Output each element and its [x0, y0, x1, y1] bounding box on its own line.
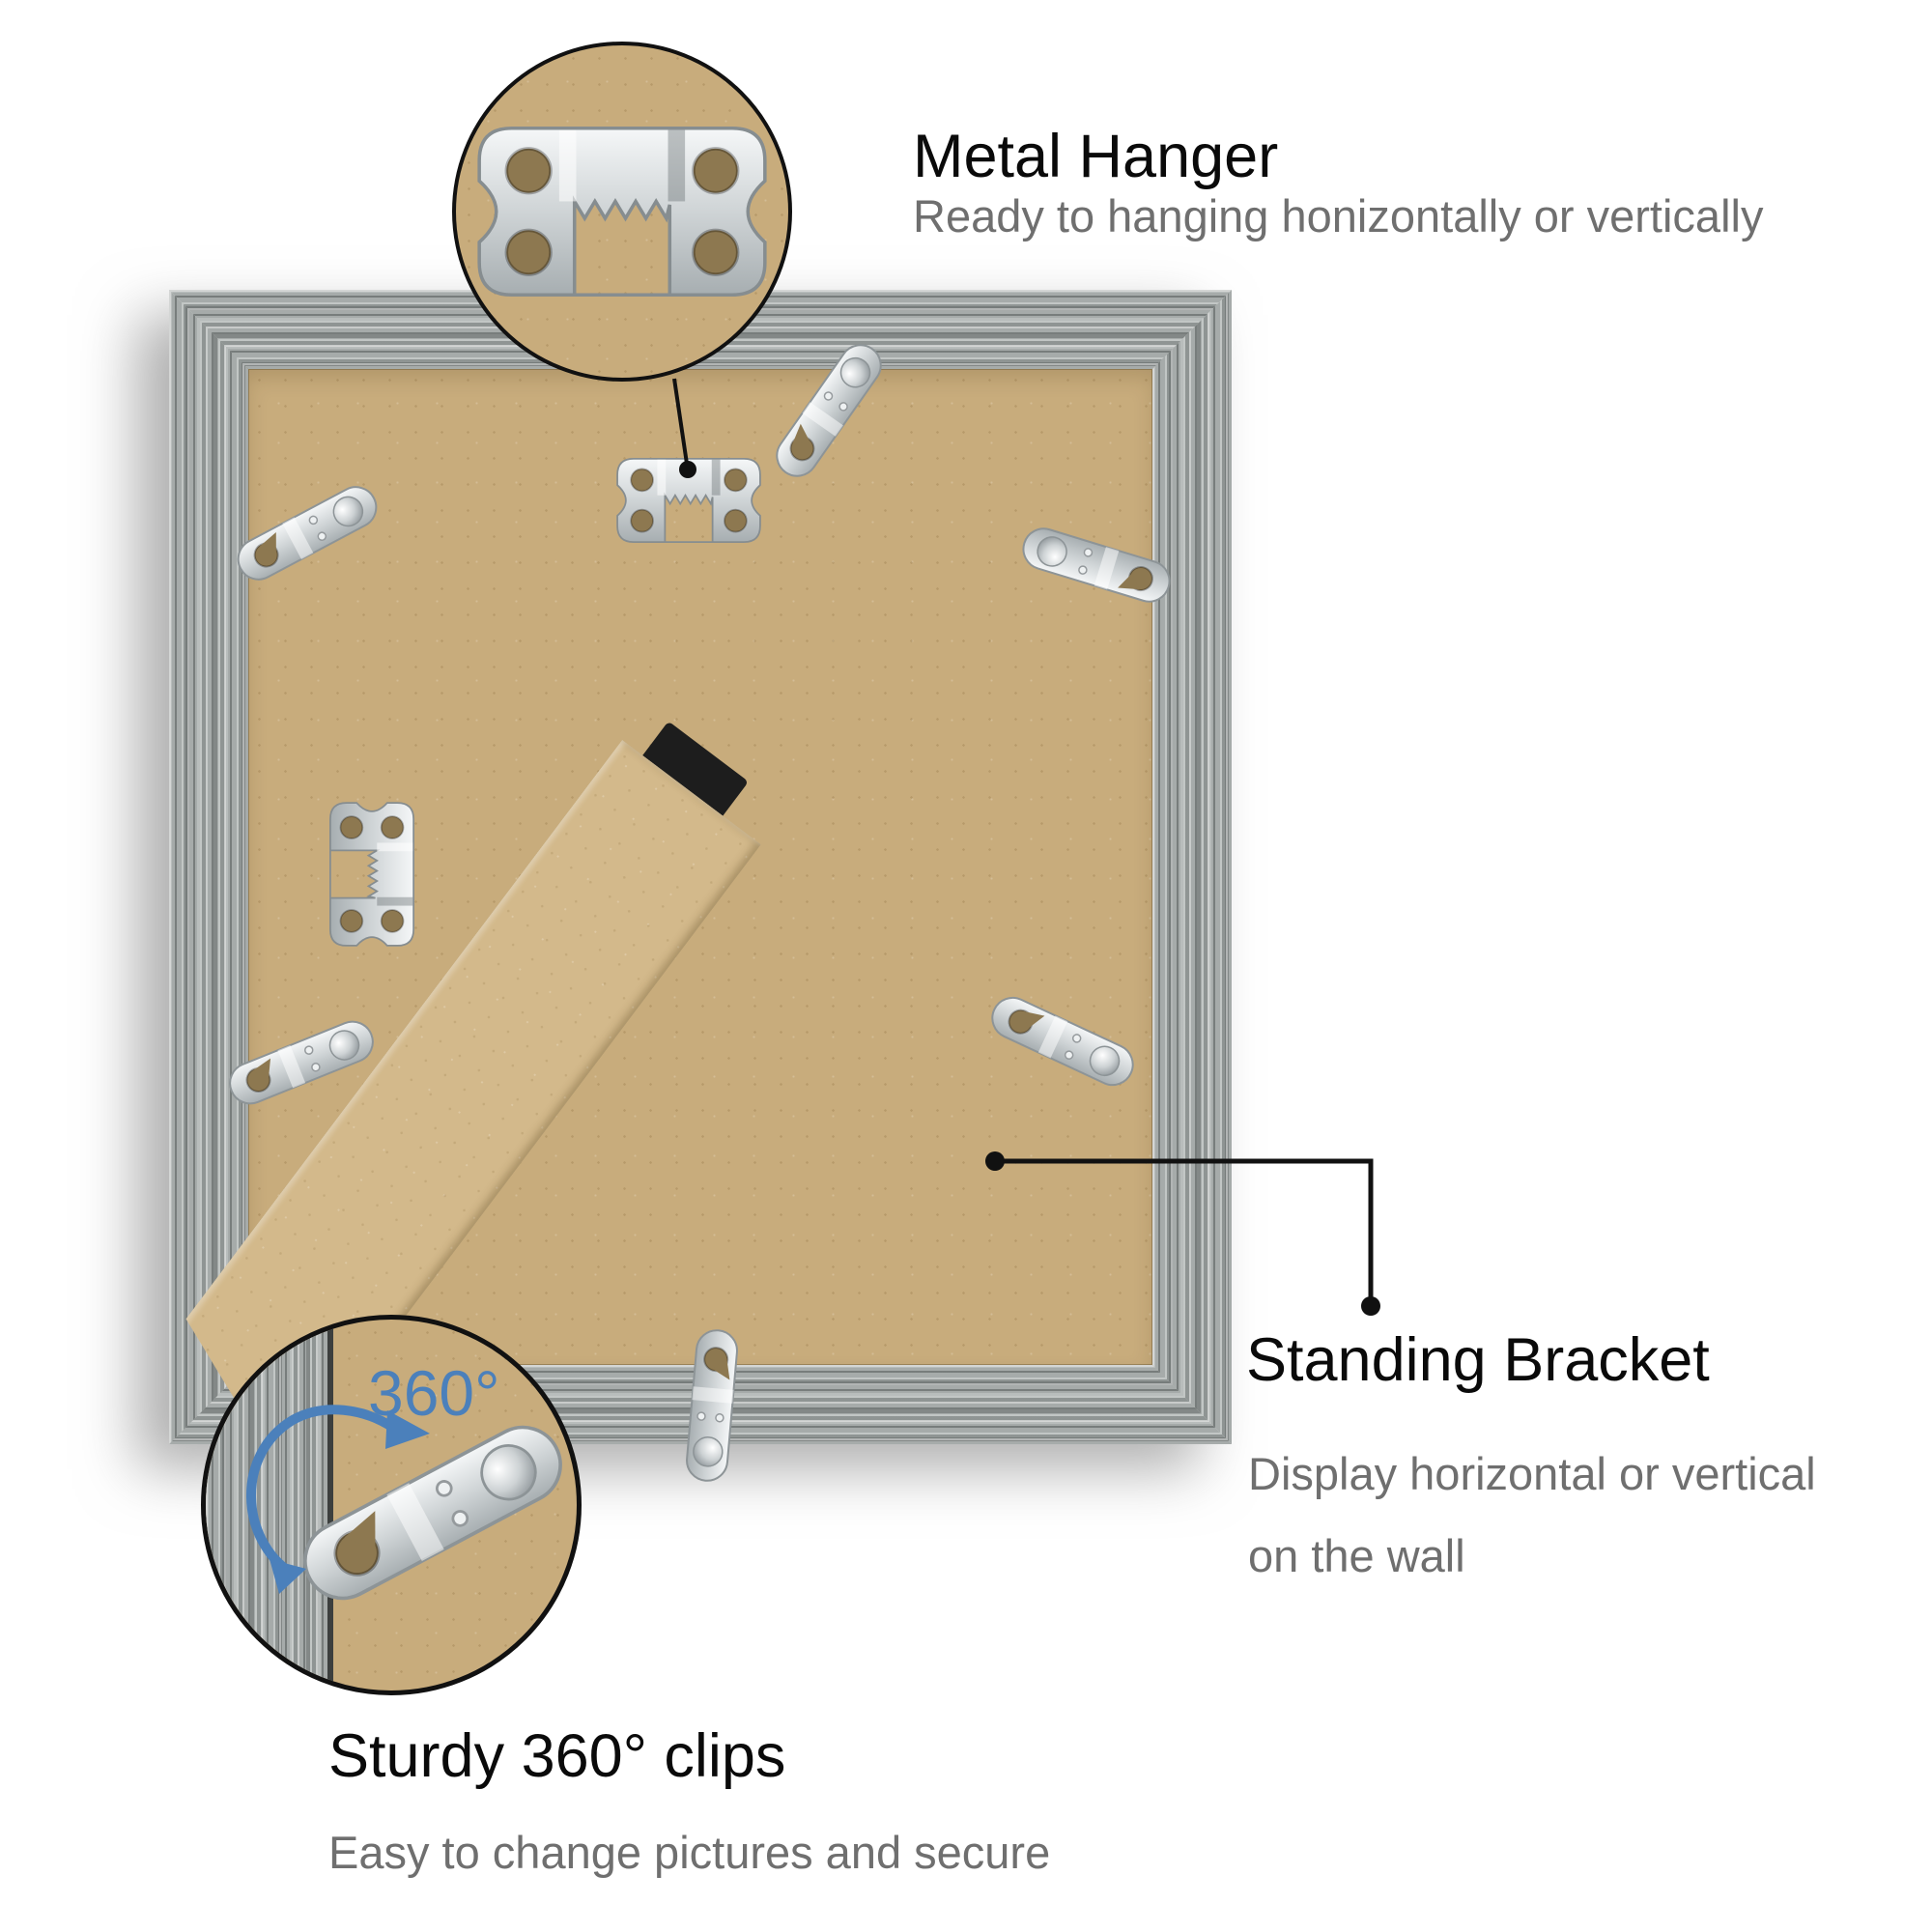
leader-dot-bracket-end: [1361, 1296, 1380, 1316]
standing-bracket-subtitle-line2: on the wall: [1248, 1529, 1465, 1582]
standing-bracket-subtitle-line1: Display horizontal or vertical: [1248, 1447, 1816, 1500]
metal-hanger-zoom-circle: [452, 42, 792, 382]
metal-hanger-subtitle: Ready to hanging honizontally or vertica…: [913, 189, 1763, 242]
leader-dot-metal-hanger: [679, 461, 696, 478]
metal-hanger-title: Metal Hanger: [913, 122, 1278, 191]
standing-bracket-title: Standing Bracket: [1246, 1325, 1710, 1395]
sturdy-clips-title: Sturdy 360° clips: [328, 1721, 785, 1791]
leader-dot-bracket-start: [985, 1151, 1005, 1171]
leader-line-standing-bracket: [995, 1161, 1371, 1306]
clip-zoom-circle: 360°: [201, 1315, 582, 1695]
metal-hanger-zoom-icon: [477, 127, 767, 297]
leader-line-metal-hanger: [674, 379, 687, 464]
rotation-degree-label: 360°: [368, 1356, 500, 1430]
sturdy-clips-subtitle: Easy to change pictures and secure: [328, 1826, 1050, 1879]
product-annotation-image: 360° Metal Hanger Ready to hanging honiz…: [0, 0, 1932, 1932]
